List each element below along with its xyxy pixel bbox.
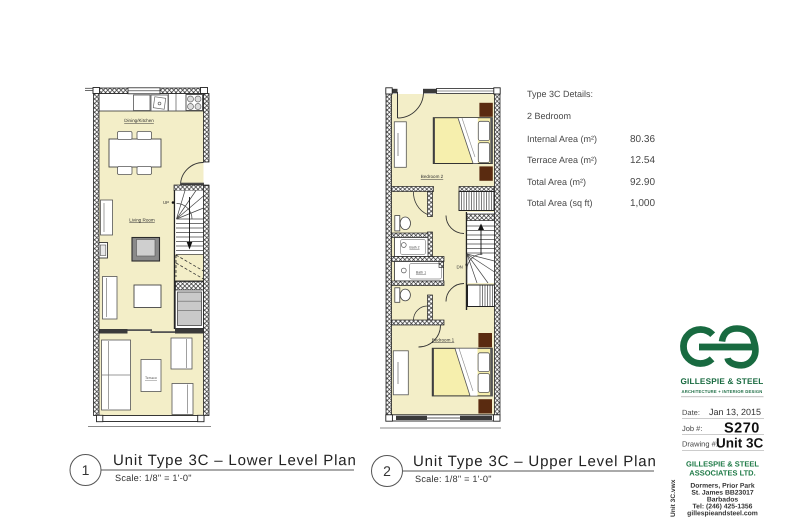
svg-text:Unit 3C: Unit 3C — [716, 436, 764, 451]
svg-text:Bath 1: Bath 1 — [416, 270, 426, 274]
svg-text:ASSOCIATES LTD.: ASSOCIATES LTD. — [689, 468, 755, 477]
svg-text:GILLESPIE & STEEL: GILLESPIE & STEEL — [686, 459, 759, 468]
svg-text:Living Room: Living Room — [129, 217, 155, 222]
svg-text:92.90: 92.90 — [630, 177, 655, 188]
svg-text:Unit Type 3C – Lower Level Pla: Unit Type 3C – Lower Level Plan — [113, 452, 357, 469]
svg-text:Scale: 1/8" = 1'-0": Scale: 1/8" = 1'-0" — [115, 473, 192, 483]
svg-text:UP: UP — [163, 200, 169, 205]
svg-text:Drawing #:: Drawing #: — [682, 440, 718, 449]
svg-text:Jan 13, 2015: Jan 13, 2015 — [709, 407, 761, 417]
svg-text:Bath 2: Bath 2 — [409, 245, 419, 249]
svg-text:Bedroom 1: Bedroom 1 — [432, 337, 455, 342]
svg-text:12.54: 12.54 — [630, 155, 655, 166]
svg-text:gillespieandsteel.com: gillespieandsteel.com — [687, 510, 758, 517]
svg-text:Total Area (sq ft): Total Area (sq ft) — [527, 198, 593, 208]
svg-text:DN: DN — [456, 265, 462, 270]
svg-text:Job #:: Job #: — [682, 424, 702, 433]
svg-text:Unit 3C.vwx: Unit 3C.vwx — [670, 479, 677, 517]
svg-text:80.36: 80.36 — [630, 134, 655, 145]
svg-text:2: 2 — [383, 463, 391, 479]
svg-text:2 Bedroom: 2 Bedroom — [527, 111, 571, 121]
svg-text:Total Area (m²): Total Area (m²) — [527, 177, 586, 187]
svg-text:1: 1 — [82, 462, 90, 478]
svg-text:Bedroom 2: Bedroom 2 — [421, 174, 444, 179]
svg-text:S270: S270 — [724, 421, 760, 437]
svg-text:GILLESPIE & STEEL: GILLESPIE & STEEL — [680, 377, 763, 386]
svg-text:Type 3C Details:: Type 3C Details: — [527, 89, 593, 99]
svg-text:Terrace Area (m²): Terrace Area (m²) — [527, 155, 597, 165]
svg-text:Scale: 1/8" = 1'-0": Scale: 1/8" = 1'-0" — [415, 474, 492, 484]
svg-text:Unit Type 3C – Upper Level Pla: Unit Type 3C – Upper Level Plan — [413, 453, 657, 470]
svg-text:1,000: 1,000 — [630, 198, 655, 209]
svg-text:Internal Area (m²): Internal Area (m²) — [527, 134, 597, 144]
svg-text:ARCHITECTURE + INTERIOR DESIGN: ARCHITECTURE + INTERIOR DESIGN — [681, 389, 762, 394]
svg-text:Terrace: Terrace — [145, 376, 157, 380]
svg-text:Date:: Date: — [682, 408, 700, 417]
svg-text:Dining/Kitchen: Dining/Kitchen — [124, 118, 154, 123]
